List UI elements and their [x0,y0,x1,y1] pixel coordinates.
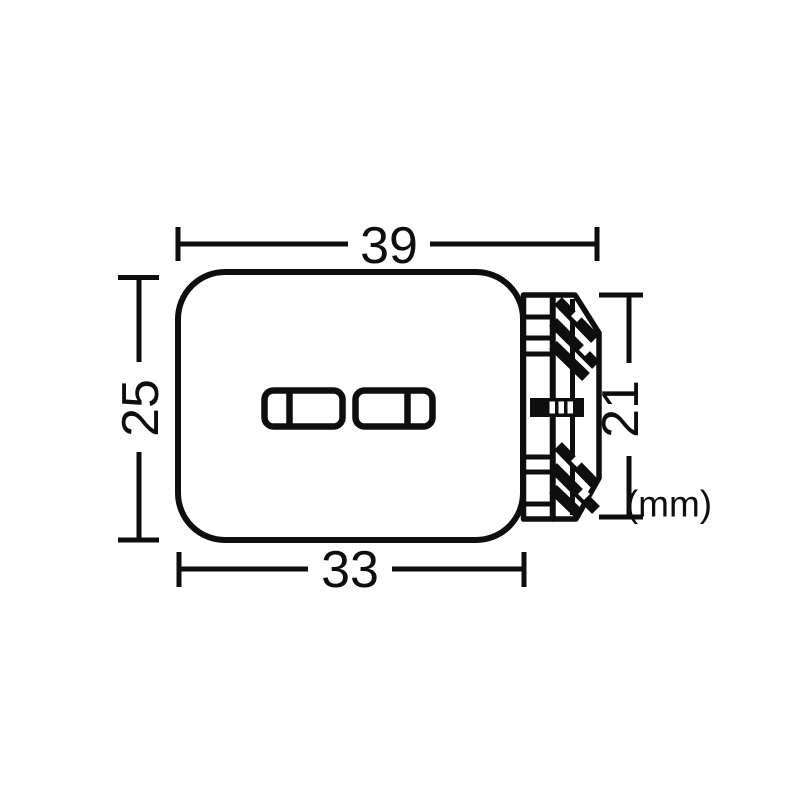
terminal-slots [550,402,574,414]
window-left [265,391,343,427]
indicator-windows [265,391,433,427]
terminal-slot [568,402,574,414]
dimension-diagram: 39 33 25 21 (mm) [0,0,800,800]
terminal-bar [530,398,584,417]
device-body-outline [178,272,523,540]
window-right [356,391,433,427]
unit-label: (mm) [626,484,712,525]
dim-right-height-label: 21 [592,380,650,438]
side-connector [524,295,600,519]
device-body [178,272,523,540]
dim-bottom-width-label: 33 [321,541,379,599]
terminal-slot [559,402,565,414]
dim-left-height-label: 25 [112,379,170,437]
dim-top-width-label: 39 [360,217,418,275]
diagram-page: 39 33 25 21 (mm) [0,0,800,800]
terminal-slot [550,402,556,414]
connector-terminals [530,398,584,417]
